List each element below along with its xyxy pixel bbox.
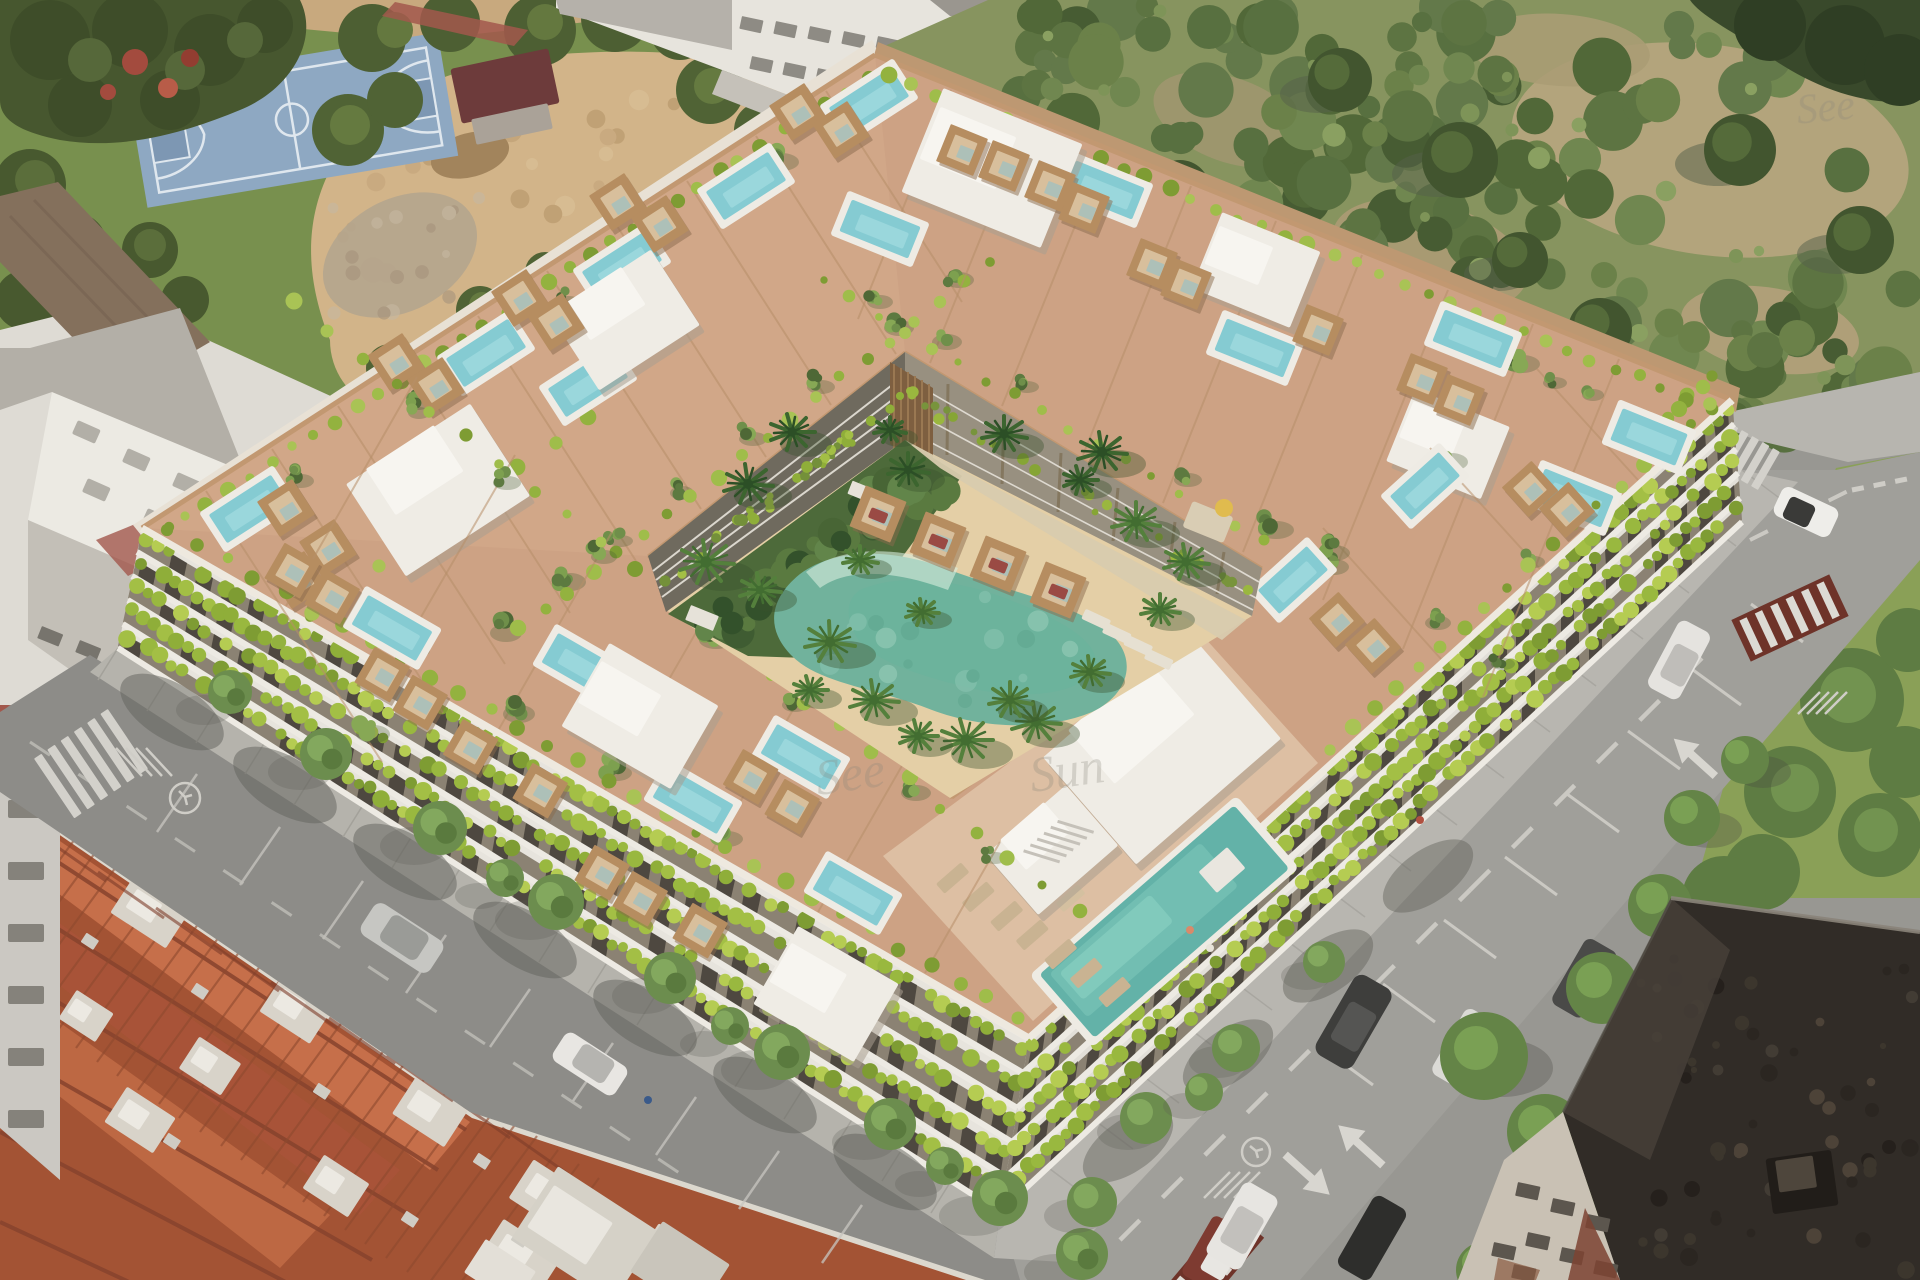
- svg-text:See: See: [1794, 82, 1857, 134]
- svg-text:See: See: [812, 741, 889, 806]
- svg-text:Sun: Sun: [1026, 737, 1108, 803]
